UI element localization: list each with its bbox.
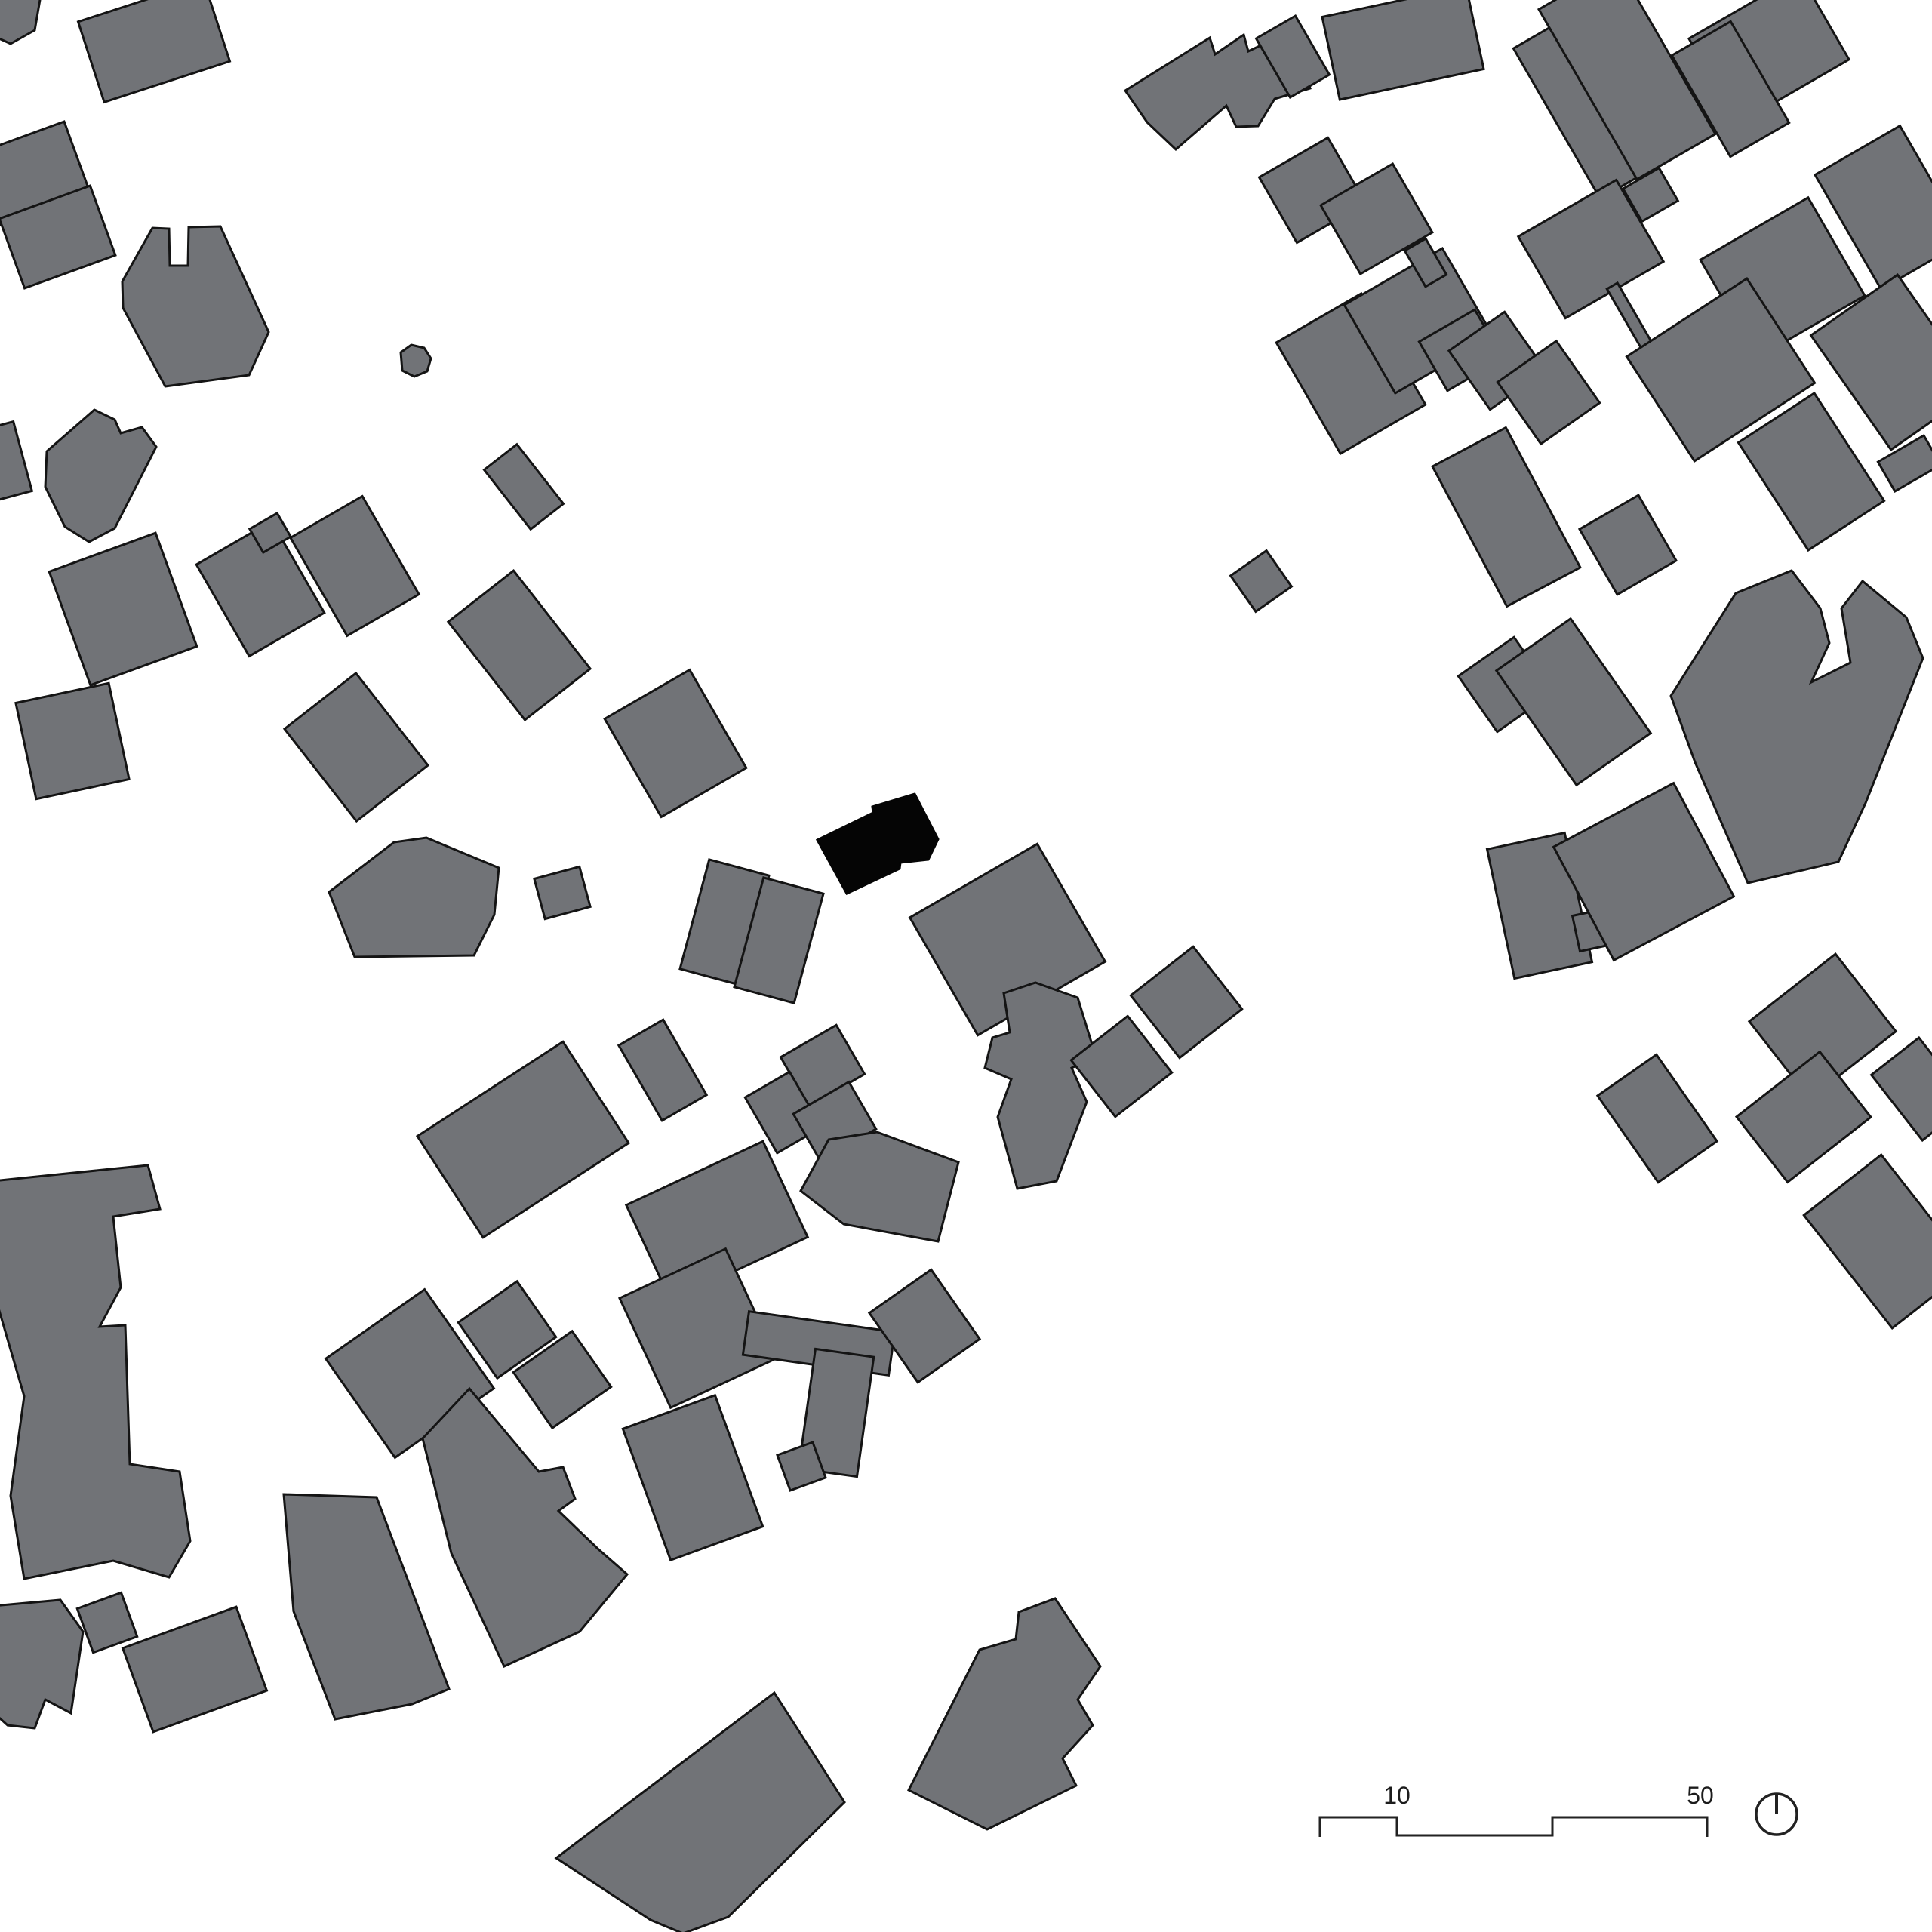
building: [0, 1600, 83, 1728]
site-plan-page: 10 50: [0, 0, 1932, 1932]
building: [16, 683, 129, 798]
scale-bar-label-10: 10: [1383, 1782, 1411, 1809]
site-plan: 10 50: [0, 0, 1932, 1932]
scale-bar-label-50: 50: [1687, 1782, 1714, 1809]
building-hexagon: [401, 345, 431, 377]
